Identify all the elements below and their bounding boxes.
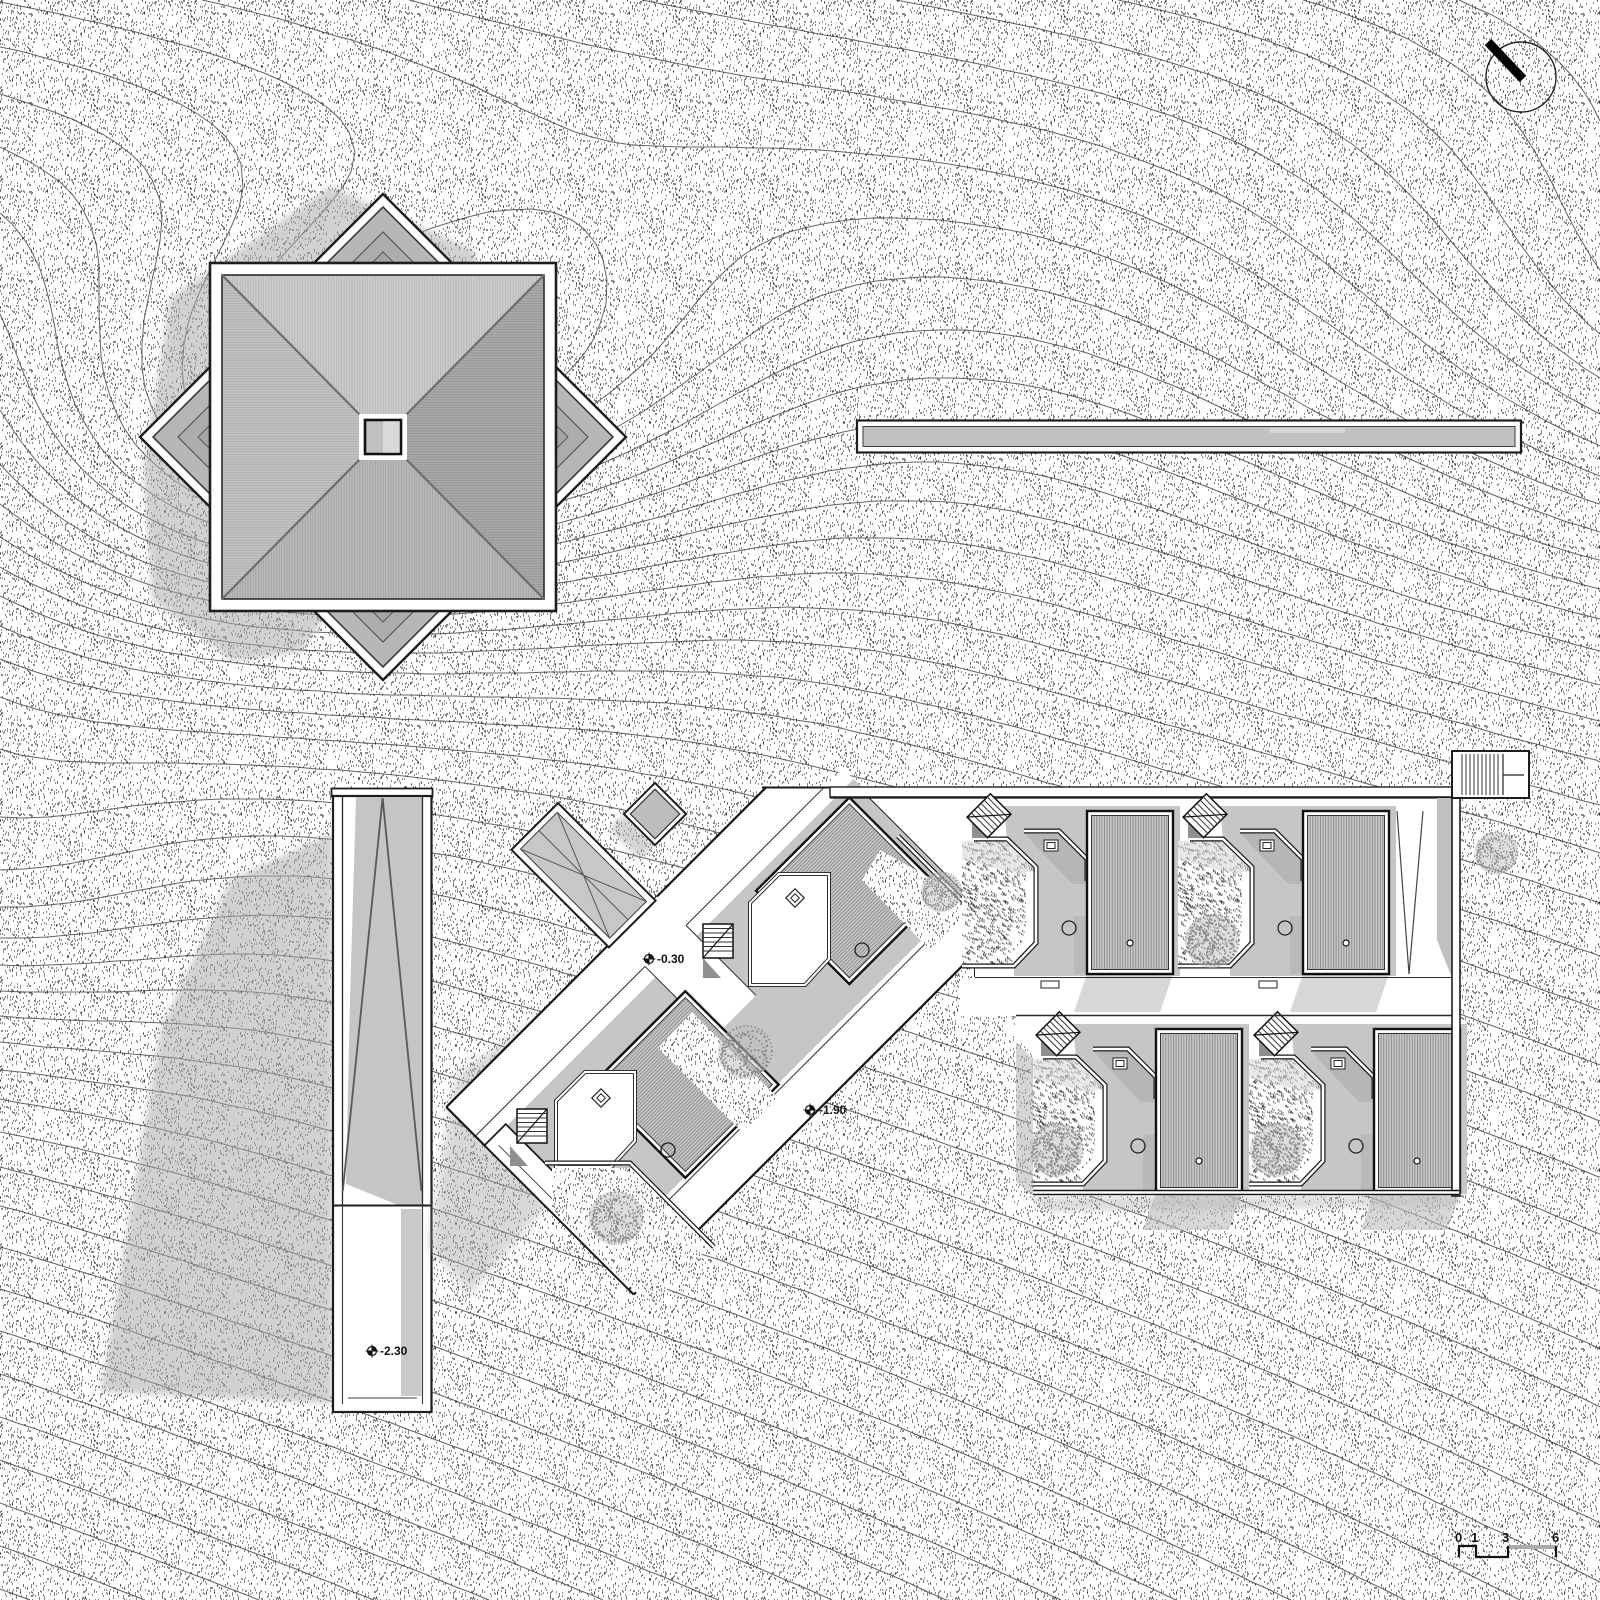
svg-text:-1.90: -1.90 — [819, 1103, 847, 1117]
svg-text:3: 3 — [1502, 1530, 1509, 1545]
svg-text:0: 0 — [1455, 1530, 1462, 1545]
svg-text:6: 6 — [1552, 1530, 1559, 1545]
svg-text:1: 1 — [1471, 1530, 1478, 1545]
svg-text:-2.30: -2.30 — [380, 1344, 408, 1358]
svg-text:-0.30: -0.30 — [657, 952, 685, 966]
